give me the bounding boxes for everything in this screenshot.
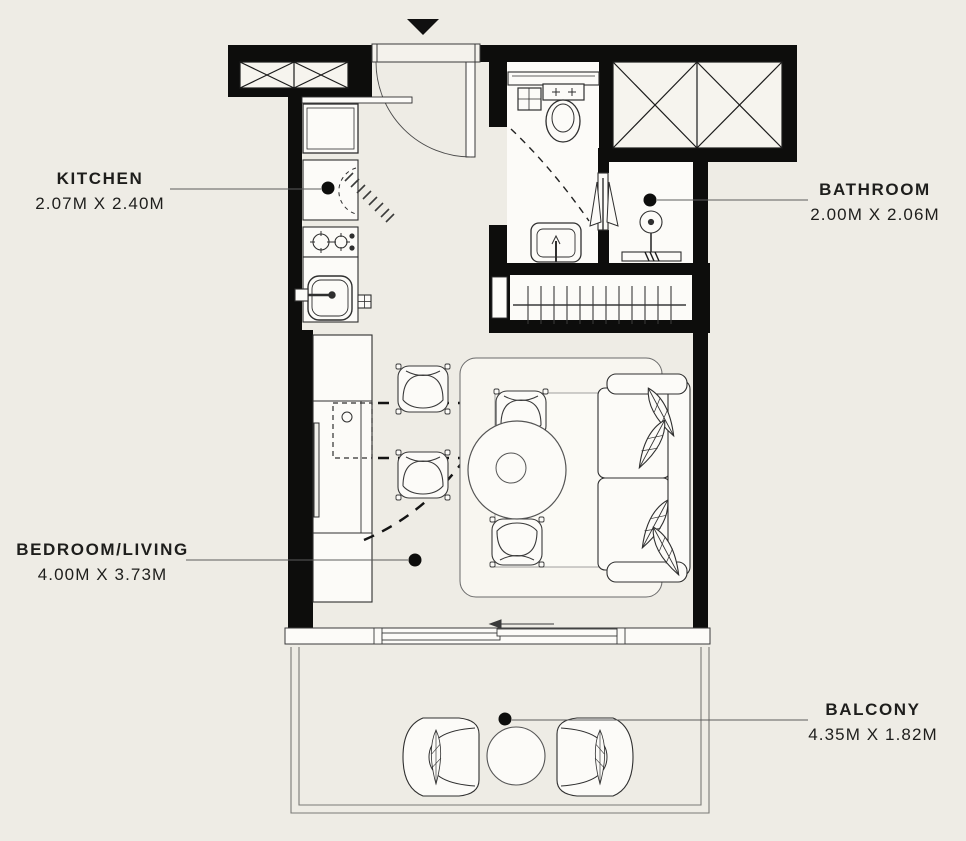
kitchen-label-title: KITCHEN <box>5 166 195 191</box>
bathroom-wall-cabinet <box>518 88 541 110</box>
kitchen-label-dims: 2.07M X 2.40M <box>5 191 195 216</box>
entry-door-swing <box>376 62 471 157</box>
wall-top-left <box>228 45 372 62</box>
kitchen-sink <box>295 257 358 322</box>
bedroom-living-label: BEDROOM/LIVING 4.00M X 3.73M <box>0 537 205 587</box>
wall-bed-cabinet <box>313 335 372 602</box>
kitchen-label: KITCHEN 2.07M X 2.40M <box>5 166 195 216</box>
slide-arrow-icon <box>490 620 501 628</box>
bathroom-vanity-shelf <box>508 72 599 85</box>
balcony-table <box>487 727 545 785</box>
dining-table <box>468 421 566 519</box>
entrance-arrow-icon <box>407 19 439 35</box>
wardrobe-interior <box>510 275 692 320</box>
floor-drain <box>358 295 371 308</box>
dining-chair <box>490 517 544 567</box>
wall-living-left <box>288 330 313 628</box>
balcony-label-title: BALCONY <box>778 697 966 722</box>
balcony-dot <box>499 713 512 726</box>
balcony-area <box>291 647 709 813</box>
bathroom-label-title: BATHROOM <box>780 177 966 202</box>
sofa <box>598 374 690 582</box>
balcony-armchair <box>403 718 479 796</box>
balcony-railing <box>291 647 709 813</box>
cabinet-handle <box>314 423 319 517</box>
bathroom-sink <box>531 223 581 262</box>
sliding-door <box>285 620 710 644</box>
kitchen-counter-edge <box>302 97 412 103</box>
bedroom-living-label-title: BEDROOM/LIVING <box>0 537 205 562</box>
wardrobe <box>492 275 692 324</box>
bedroom-living-label-dims: 4.00M X 3.73M <box>0 562 205 587</box>
stove <box>303 227 358 257</box>
balcony-label: BALCONY 4.35M X 1.82M <box>778 697 966 747</box>
wall-right <box>693 162 708 628</box>
kitchen-fixtures <box>295 97 412 322</box>
bathroom-dot <box>644 194 657 207</box>
wardrobe-niche <box>492 277 507 318</box>
floor-plan: KITCHEN 2.07M X 2.40M BATHROOM 2.00M X 2… <box>0 0 966 841</box>
entry-door-leaf <box>466 62 475 157</box>
bedroom-dot <box>409 554 422 567</box>
dining-chair <box>396 450 450 500</box>
sliding-panel <box>497 629 617 636</box>
entrance <box>372 19 480 157</box>
sofa-armrest <box>607 374 687 394</box>
balcony-armchair <box>557 718 633 796</box>
bathroom-label-dims: 2.00M X 2.06M <box>780 202 966 227</box>
kitchen-dot <box>322 182 335 195</box>
shaft-left <box>240 62 348 88</box>
bathroom-label: BATHROOM 2.00M X 2.06M <box>780 177 966 227</box>
fridge <box>303 104 358 153</box>
balcony-label-dims: 4.35M X 1.82M <box>778 722 966 747</box>
entry-door-frame <box>372 44 480 62</box>
wall-top-right <box>478 45 797 62</box>
shaft-right <box>613 62 782 148</box>
sliding-panel <box>382 633 500 640</box>
living-room <box>313 335 690 602</box>
dining-chair <box>396 364 450 414</box>
